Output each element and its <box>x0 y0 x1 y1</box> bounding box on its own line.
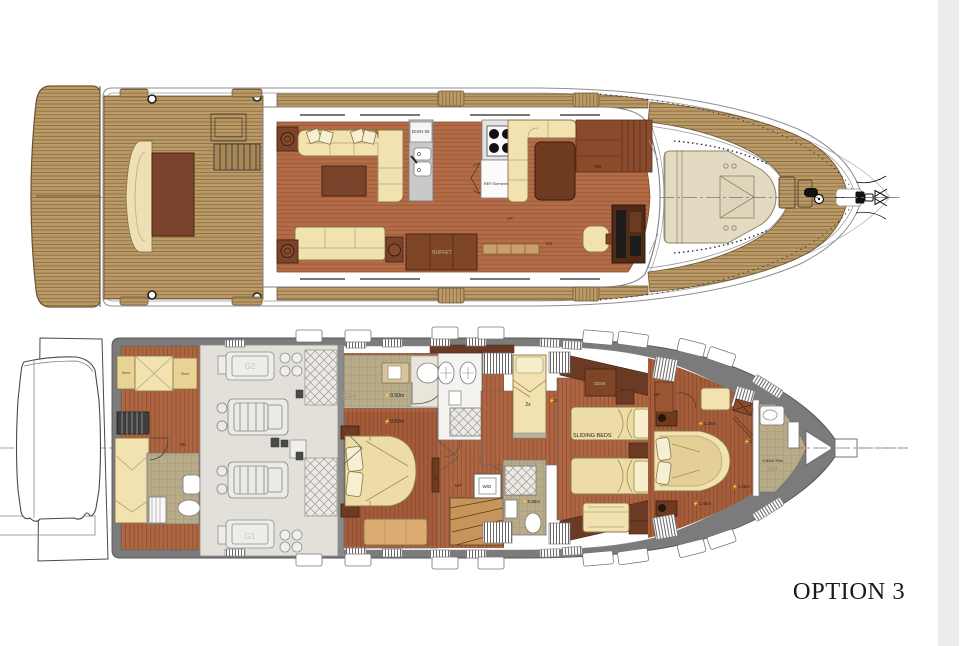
svg-text:DESK: DESK <box>594 381 606 386</box>
svg-text:1.00x0.75m: 1.00x0.75m <box>762 458 784 463</box>
svg-text:BUFFET: BUFFET <box>432 250 451 256</box>
svg-text:UP: UP <box>455 483 461 488</box>
svg-text:⚡0.65m: ⚡0.65m <box>522 498 540 505</box>
svg-text:DISH W.: DISH W. <box>412 129 430 135</box>
svg-text:Store: Store <box>122 371 131 375</box>
svg-text:⚡1.25m: ⚡1.25m <box>732 483 750 490</box>
svg-text:UP: UP <box>654 392 660 397</box>
svg-text:⚡1.25m: ⚡1.25m <box>698 420 716 427</box>
svg-text:⚡1.45m: ⚡1.45m <box>693 500 711 507</box>
svg-text:UP: UP <box>507 216 513 221</box>
svg-text:REF.Siemens: REF.Siemens <box>484 181 508 186</box>
svg-text:Store: Store <box>181 372 190 376</box>
svg-text:2x: 2x <box>525 402 531 408</box>
svg-text:TV: TV <box>433 475 438 480</box>
svg-text:SH: SH <box>768 466 777 473</box>
svg-text:SLIDING BEDS: SLIDING BEDS <box>573 433 612 439</box>
svg-text:DN: DN <box>595 164 601 169</box>
svg-text:W/D: W/D <box>483 484 492 489</box>
svg-text:SH: SH <box>341 391 356 403</box>
svg-text:⚡0.50m: ⚡0.50m <box>384 392 404 399</box>
svg-text:DN: DN <box>546 241 552 246</box>
svg-text:SH.: SH. <box>180 442 187 447</box>
svg-text:OPTION 3: OPTION 3 <box>793 578 905 605</box>
svg-text:G2: G2 <box>245 362 256 371</box>
svg-text:⚡0.50m: ⚡0.50m <box>384 418 404 425</box>
svg-text:G1: G1 <box>245 532 256 541</box>
